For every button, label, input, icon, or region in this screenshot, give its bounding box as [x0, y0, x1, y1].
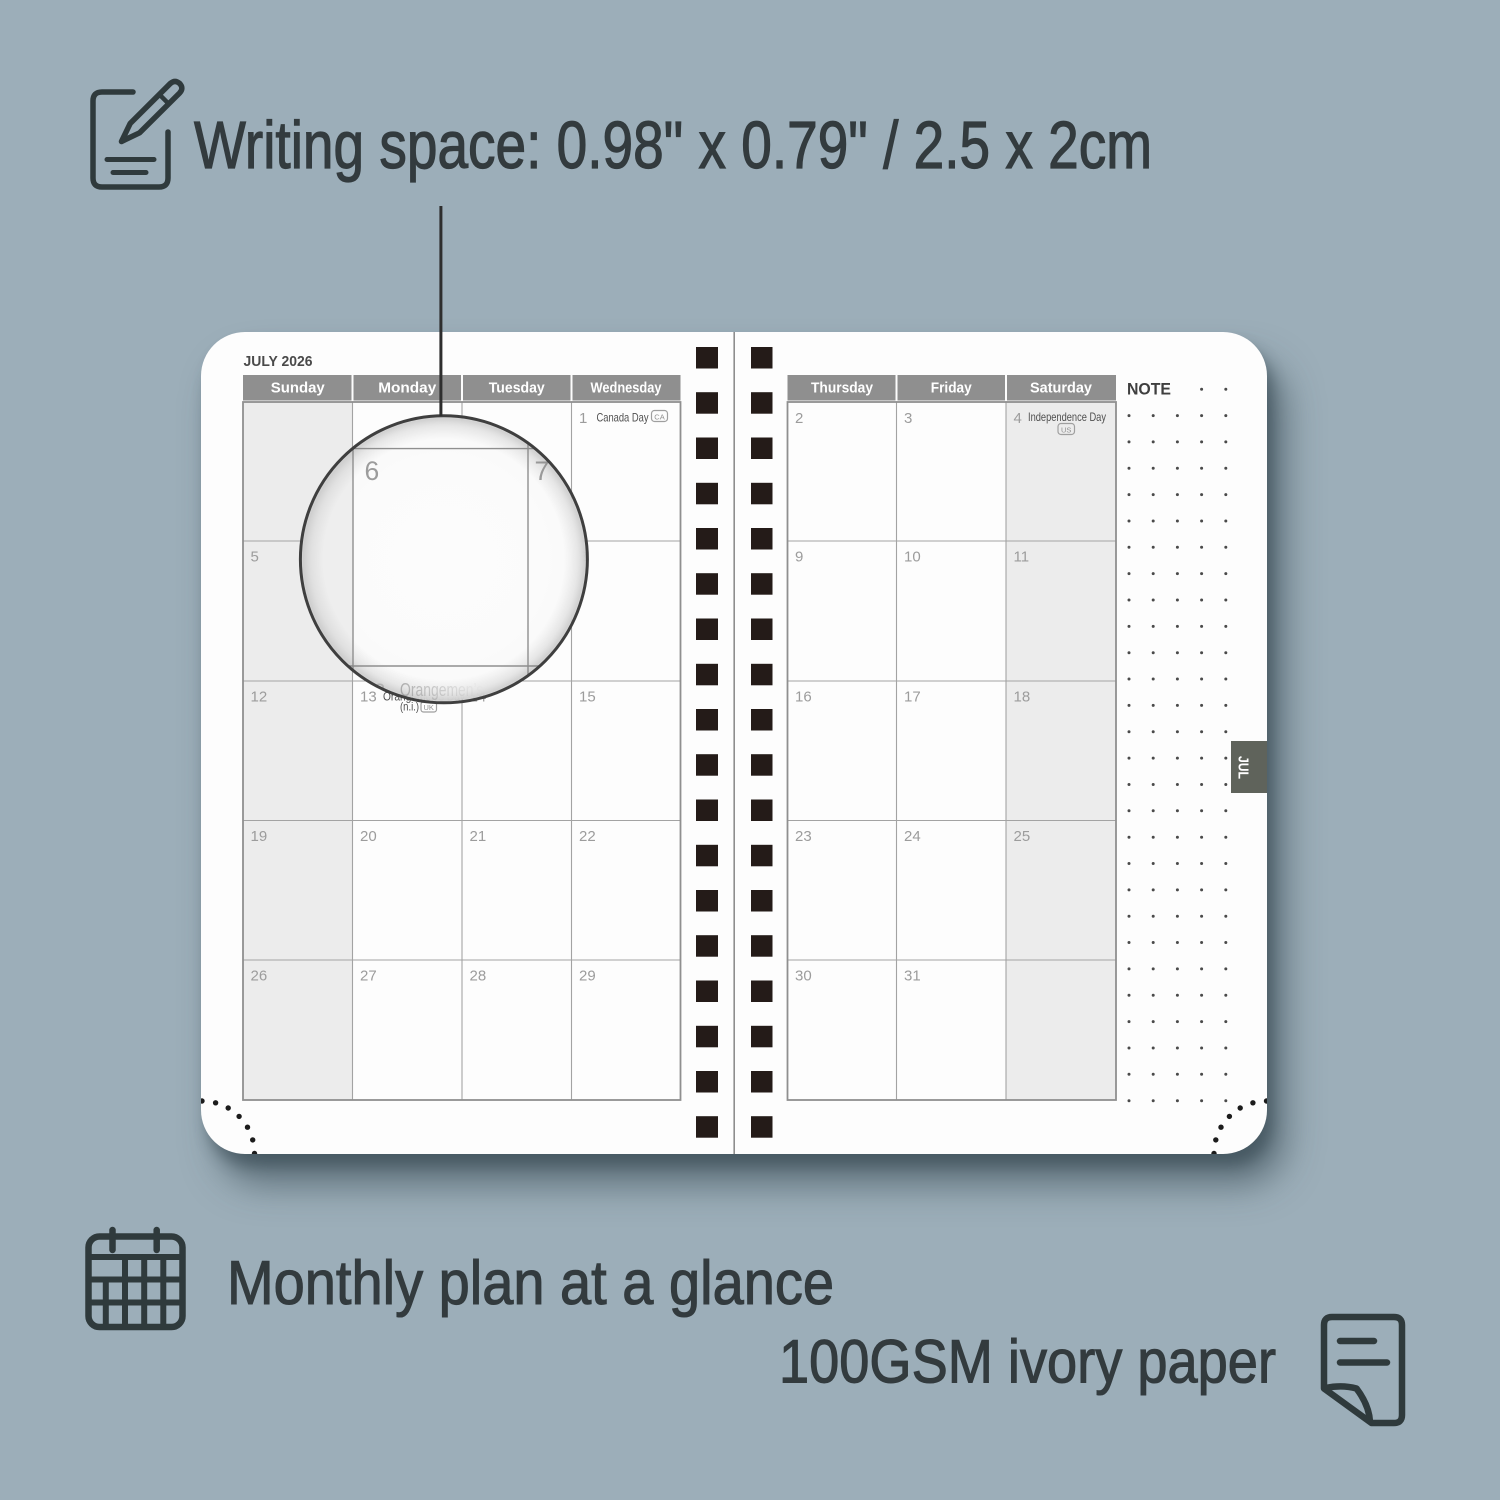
svg-text:Tuesday: Tuesday [489, 380, 546, 397]
svg-text:9: 9 [795, 549, 803, 566]
svg-text:22: 22 [579, 828, 596, 845]
svg-text:5: 5 [251, 549, 259, 566]
svg-text:Writing space: 0.98" x 0.79" /: Writing space: 0.98" x 0.79" / 2.5 x 2cm [194, 108, 1152, 183]
svg-text:27: 27 [360, 968, 377, 985]
svg-text:Wednesday: Wednesday [591, 380, 663, 397]
svg-text:2: 2 [795, 410, 803, 427]
svg-text:JULY 2026: JULY 2026 [244, 353, 313, 370]
svg-text:1: 1 [579, 410, 587, 427]
svg-text:24: 24 [904, 828, 921, 845]
svg-text:30: 30 [795, 968, 812, 985]
svg-text:17: 17 [904, 689, 921, 706]
svg-text:15: 15 [579, 689, 596, 706]
svg-text:Independence Day: Independence Day [1028, 410, 1106, 424]
svg-text:US: US [1061, 425, 1071, 434]
svg-text:25: 25 [1014, 828, 1031, 845]
svg-text:28: 28 [470, 968, 487, 985]
svg-text:3: 3 [904, 410, 912, 427]
svg-text:CA: CA [654, 412, 664, 421]
svg-text:20: 20 [360, 828, 377, 845]
svg-text:Saturday: Saturday [1030, 380, 1093, 397]
svg-text:10: 10 [904, 549, 921, 566]
svg-text:29: 29 [579, 968, 596, 985]
svg-text:Sunday: Sunday [271, 380, 326, 397]
svg-text:Friday: Friday [931, 380, 973, 397]
svg-text:Thursday: Thursday [811, 380, 874, 397]
svg-text:18: 18 [1014, 689, 1031, 706]
svg-text:Monday: Monday [378, 380, 437, 397]
svg-text:100GSM ivory paper: 100GSM ivory paper [779, 1328, 1276, 1396]
svg-text:19: 19 [251, 828, 268, 845]
svg-text:16: 16 [795, 689, 812, 706]
svg-text:31: 31 [904, 968, 921, 985]
svg-text:23: 23 [795, 828, 812, 845]
svg-text:Canada Day: Canada Day [597, 411, 649, 425]
svg-text:JUL: JUL [1235, 756, 1252, 779]
svg-text:Monthly plan at a glance: Monthly plan at a glance [227, 1249, 834, 1318]
svg-text:21: 21 [470, 828, 487, 845]
svg-text:UK: UK [423, 703, 433, 712]
svg-text:4: 4 [1014, 410, 1022, 427]
svg-text:26: 26 [251, 968, 268, 985]
svg-text:12: 12 [251, 689, 268, 706]
svg-text:11: 11 [1014, 549, 1030, 566]
svg-text:13: 13 [360, 689, 377, 706]
svg-text:NOTE: NOTE [1127, 381, 1171, 399]
